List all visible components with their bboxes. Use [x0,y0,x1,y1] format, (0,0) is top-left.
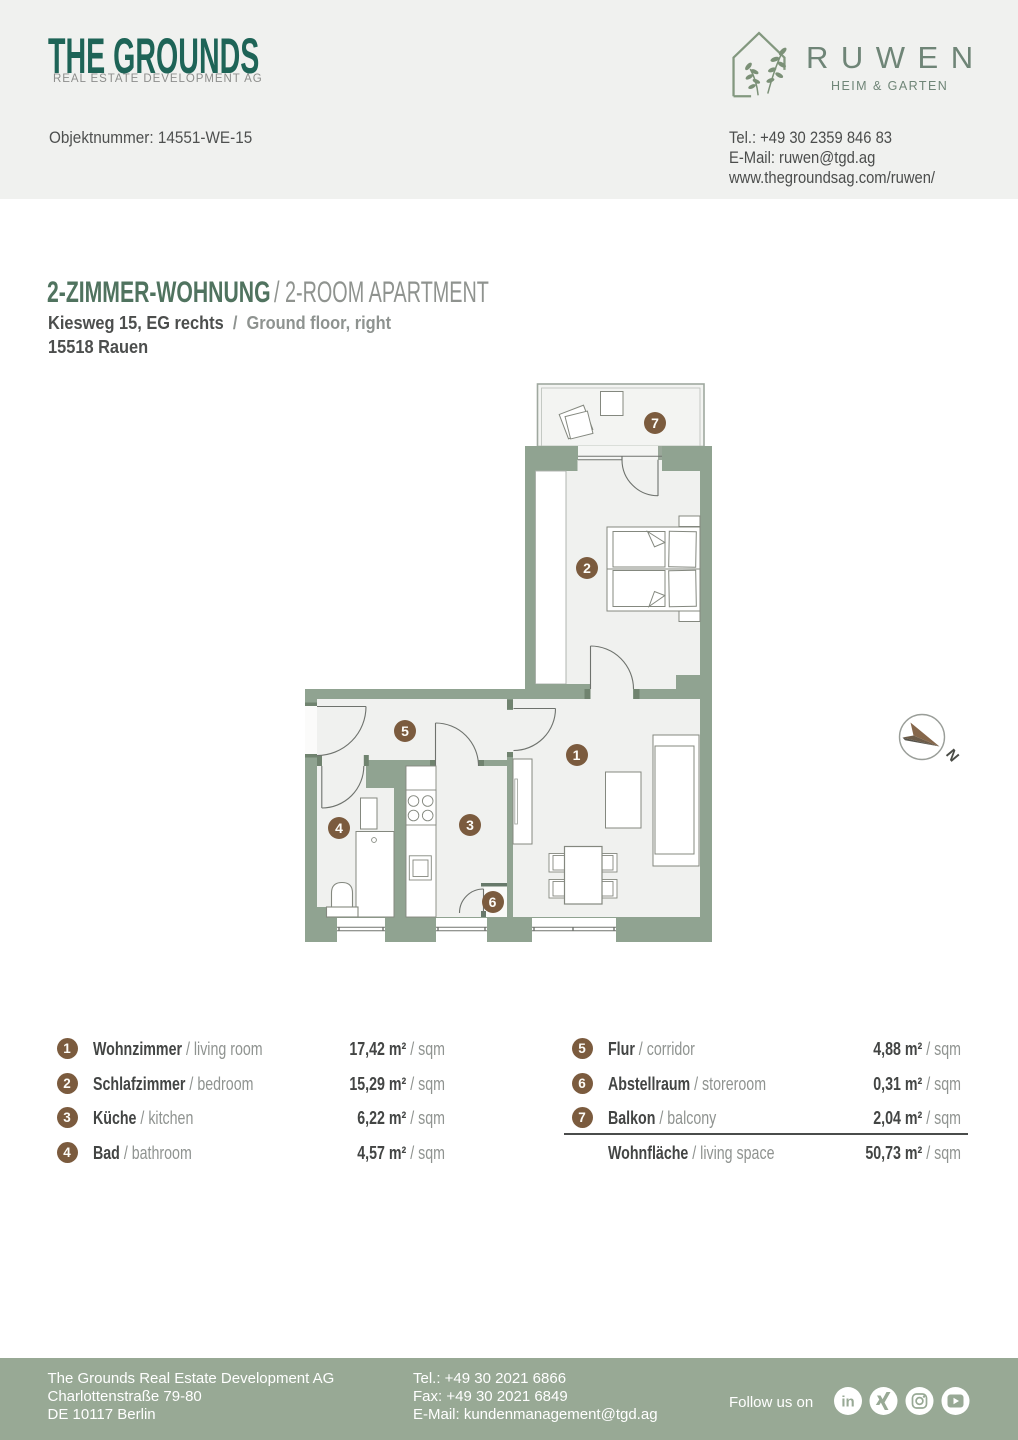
svg-text:in: in [841,1394,854,1411]
svg-text:N: N [942,746,962,765]
